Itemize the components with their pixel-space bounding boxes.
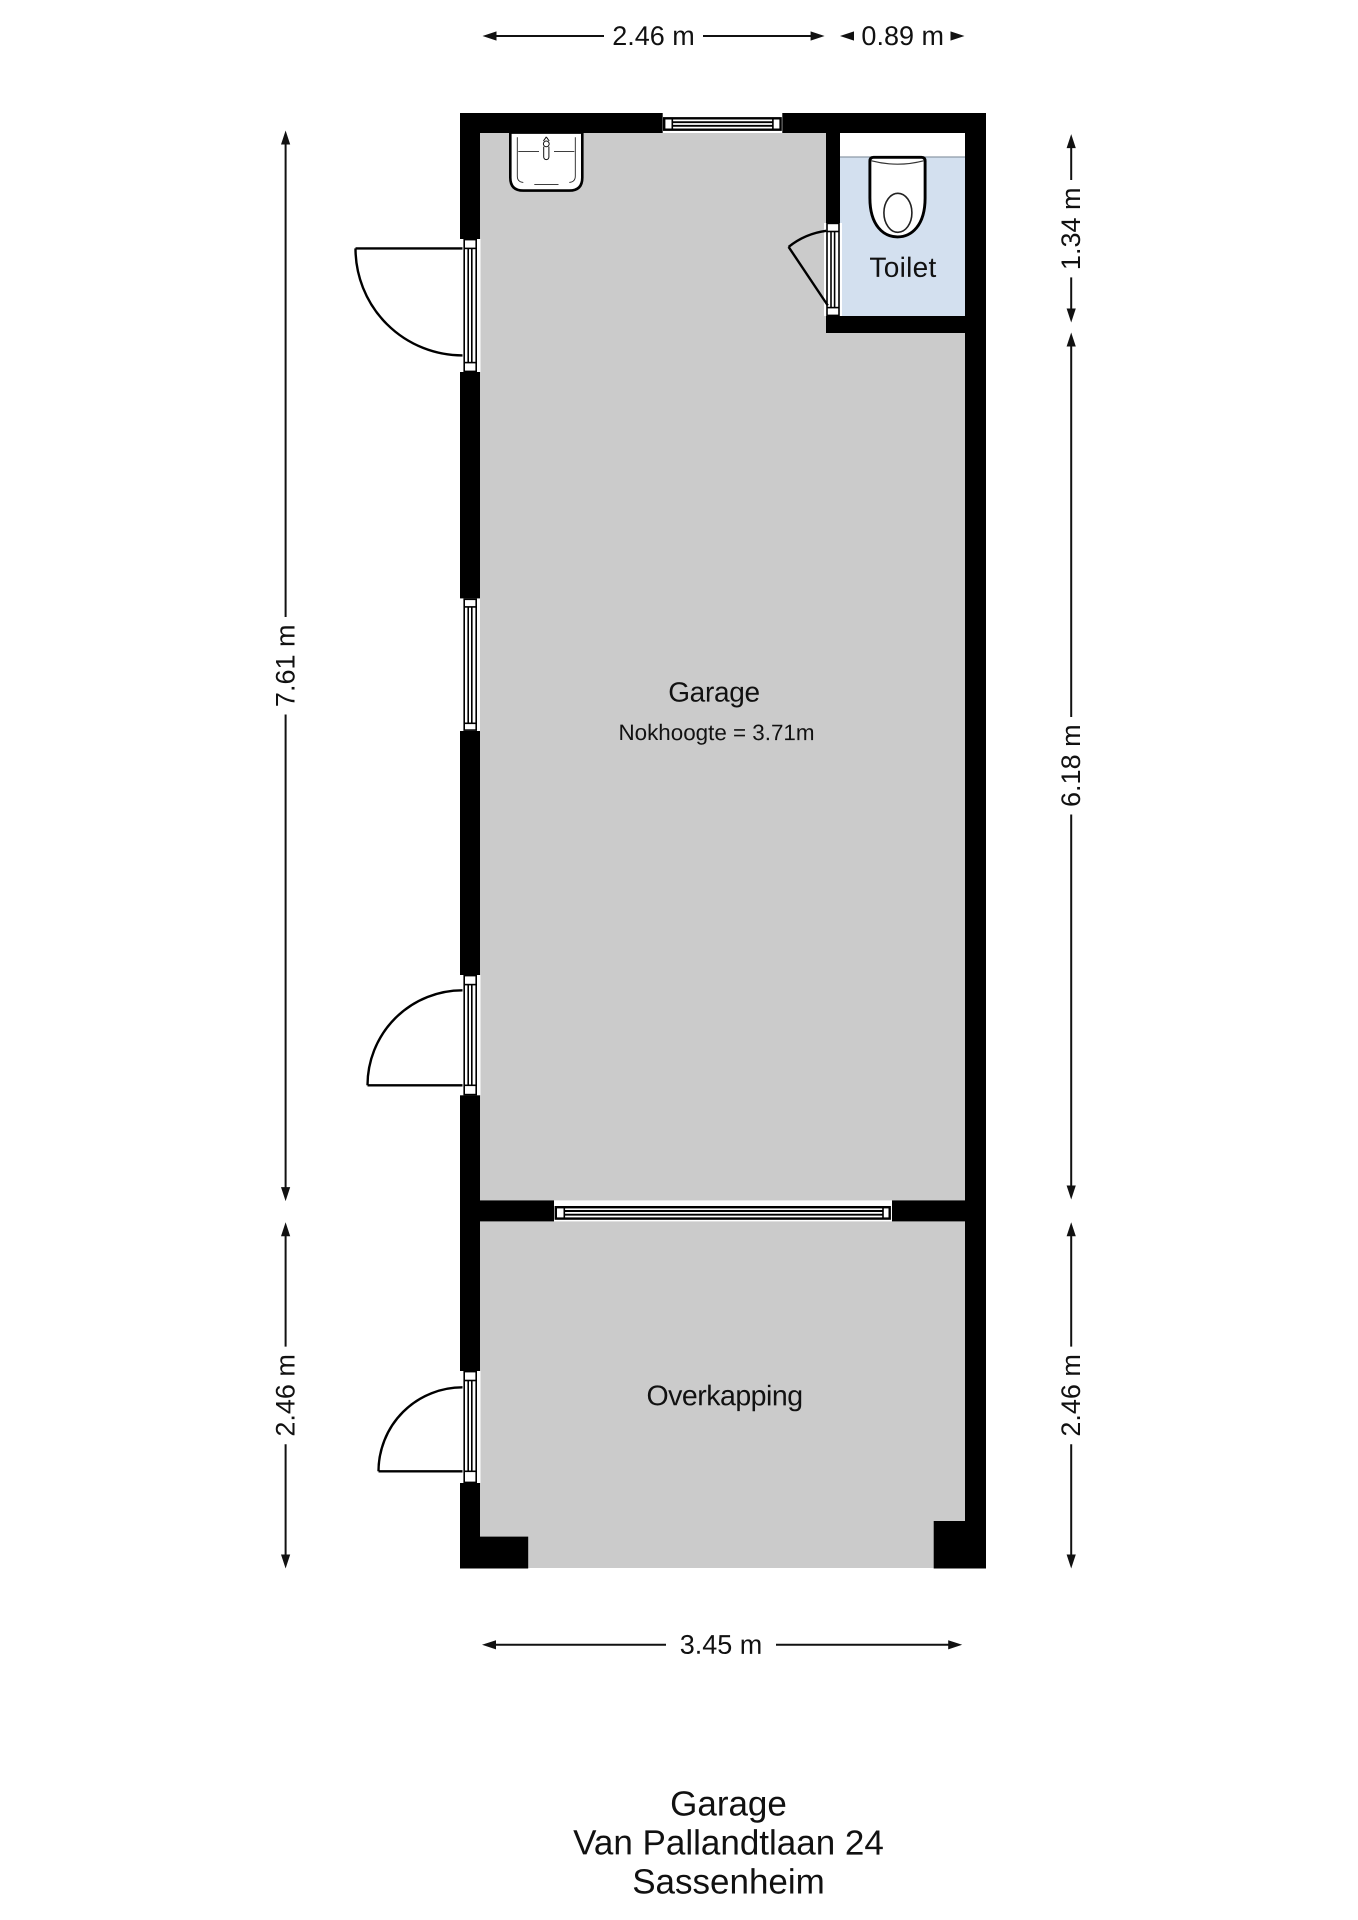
svg-text:2.46 m: 2.46 m xyxy=(612,21,695,51)
svg-text:7.61 m: 7.61 m xyxy=(271,625,301,708)
svg-text:Garage: Garage xyxy=(668,677,760,708)
svg-text:6.18 m: 6.18 m xyxy=(1056,724,1086,807)
svg-text:0.89 m: 0.89 m xyxy=(861,21,944,51)
svg-text:Garage: Garage xyxy=(670,1784,787,1823)
svg-text:Van Pallandtlaan 24: Van Pallandtlaan 24 xyxy=(573,1823,884,1862)
svg-text:2.46 m: 2.46 m xyxy=(1056,1354,1086,1437)
svg-text:3.45 m: 3.45 m xyxy=(680,1630,763,1660)
svg-text:2.46 m: 2.46 m xyxy=(271,1354,301,1437)
svg-text:Nokhoogte = 3.71m: Nokhoogte = 3.71m xyxy=(618,720,814,745)
svg-text:1.34 m: 1.34 m xyxy=(1056,188,1086,271)
svg-text:Sassenheim: Sassenheim xyxy=(632,1862,825,1901)
svg-text:Overkapping: Overkapping xyxy=(646,1380,802,1412)
svg-text:Toilet: Toilet xyxy=(869,252,936,283)
